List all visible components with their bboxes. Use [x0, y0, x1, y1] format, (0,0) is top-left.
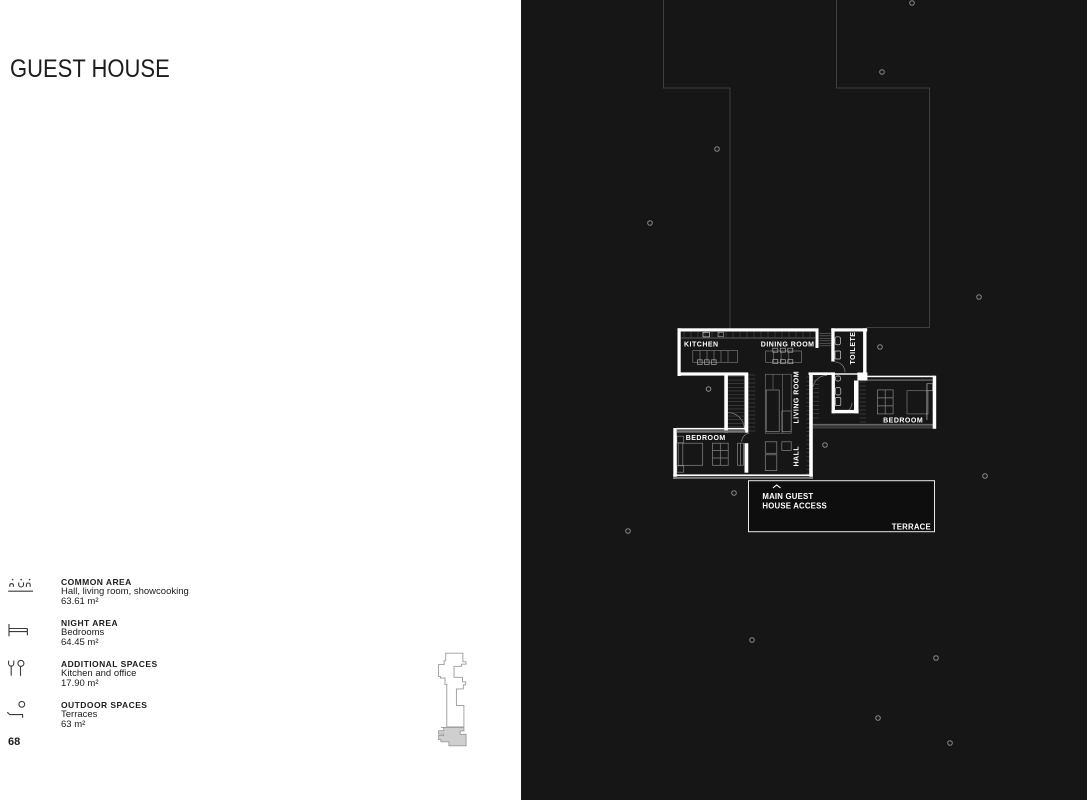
svg-text:HALL: HALL [794, 446, 801, 467]
svg-text:BEDROOM: BEDROOM [686, 435, 726, 442]
svg-text:TERRACE: TERRACE [892, 523, 931, 532]
svg-text:BEDROOM: BEDROOM [883, 418, 923, 425]
svg-text:MAIN GUEST: MAIN GUEST [762, 492, 813, 501]
svg-text:HOUSE ACCESS: HOUSE ACCESS [762, 501, 827, 510]
svg-text:KITCHEN: KITCHEN [684, 342, 719, 349]
svg-text:TOILETE: TOILETE [850, 332, 857, 365]
svg-text:LIVING ROOM: LIVING ROOM [794, 371, 801, 424]
svg-text:DINING ROOM: DINING ROOM [761, 342, 815, 349]
